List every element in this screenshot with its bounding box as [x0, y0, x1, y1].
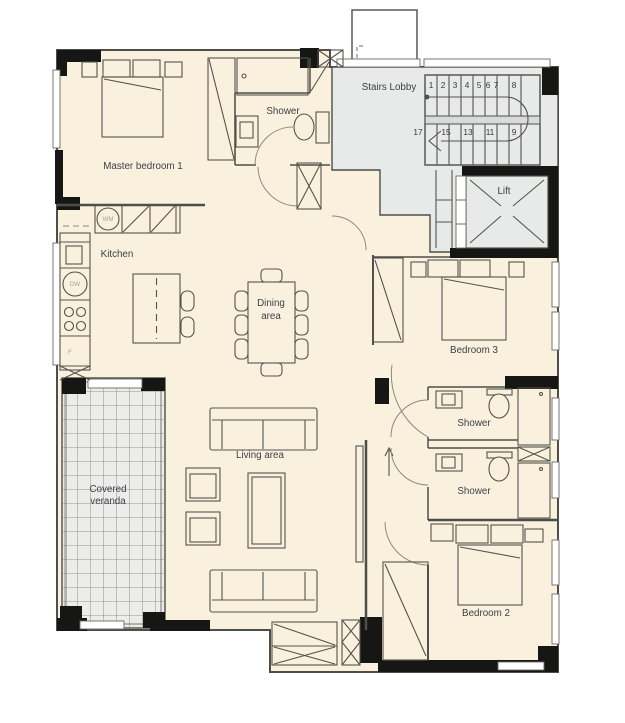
stair-number: 11	[486, 127, 495, 137]
stairs-lobby-label: Stairs Lobby	[362, 82, 417, 93]
dining-area-label-line2: area	[261, 311, 281, 322]
floor-plan-canvas: WM Master bedroom 1 Shower	[0, 0, 625, 723]
fridge-label: F	[68, 349, 72, 356]
shower-a-label: Shower	[457, 418, 491, 429]
lift-label: Lift	[497, 186, 510, 197]
stair-number: 8	[512, 80, 517, 90]
stair-number: 3	[453, 80, 458, 90]
stair-number: 1	[429, 80, 434, 90]
floor-plan-drawing: WM Master bedroom 1 Shower	[0, 0, 625, 723]
stair-number: 4	[465, 80, 470, 90]
stair-number: 5	[477, 80, 482, 90]
entrance-porch	[352, 10, 417, 65]
dishwasher-label: DW	[70, 281, 80, 288]
stair-number: 13	[463, 127, 473, 137]
svg-text:Covered: Covered	[89, 484, 126, 495]
bedroom-3-label: Bedroom 3	[450, 345, 498, 356]
stair-number: 2	[441, 80, 446, 90]
stair-number: 9	[512, 127, 517, 137]
svg-text:veranda: veranda	[90, 496, 126, 507]
shower-b-label: Shower	[457, 486, 491, 497]
lift: Lift	[456, 176, 548, 248]
bedroom-2-label: Bedroom 2	[462, 608, 510, 619]
stair-number: 7	[494, 80, 499, 90]
ensuite-shower-label: Shower	[266, 106, 300, 117]
stair-number: 15	[441, 127, 451, 137]
kitchen-label: Kitchen	[101, 249, 134, 260]
stair-number: 6	[486, 80, 491, 90]
veranda-label: Covered veranda	[89, 484, 126, 507]
washing-machine-label: WM	[103, 216, 114, 223]
living-area-label: Living area	[236, 450, 284, 461]
dining-area-label-line1: Dining	[257, 298, 285, 309]
stair-number: 17	[413, 127, 423, 137]
master-bedroom-label: Master bedroom 1	[103, 161, 183, 172]
